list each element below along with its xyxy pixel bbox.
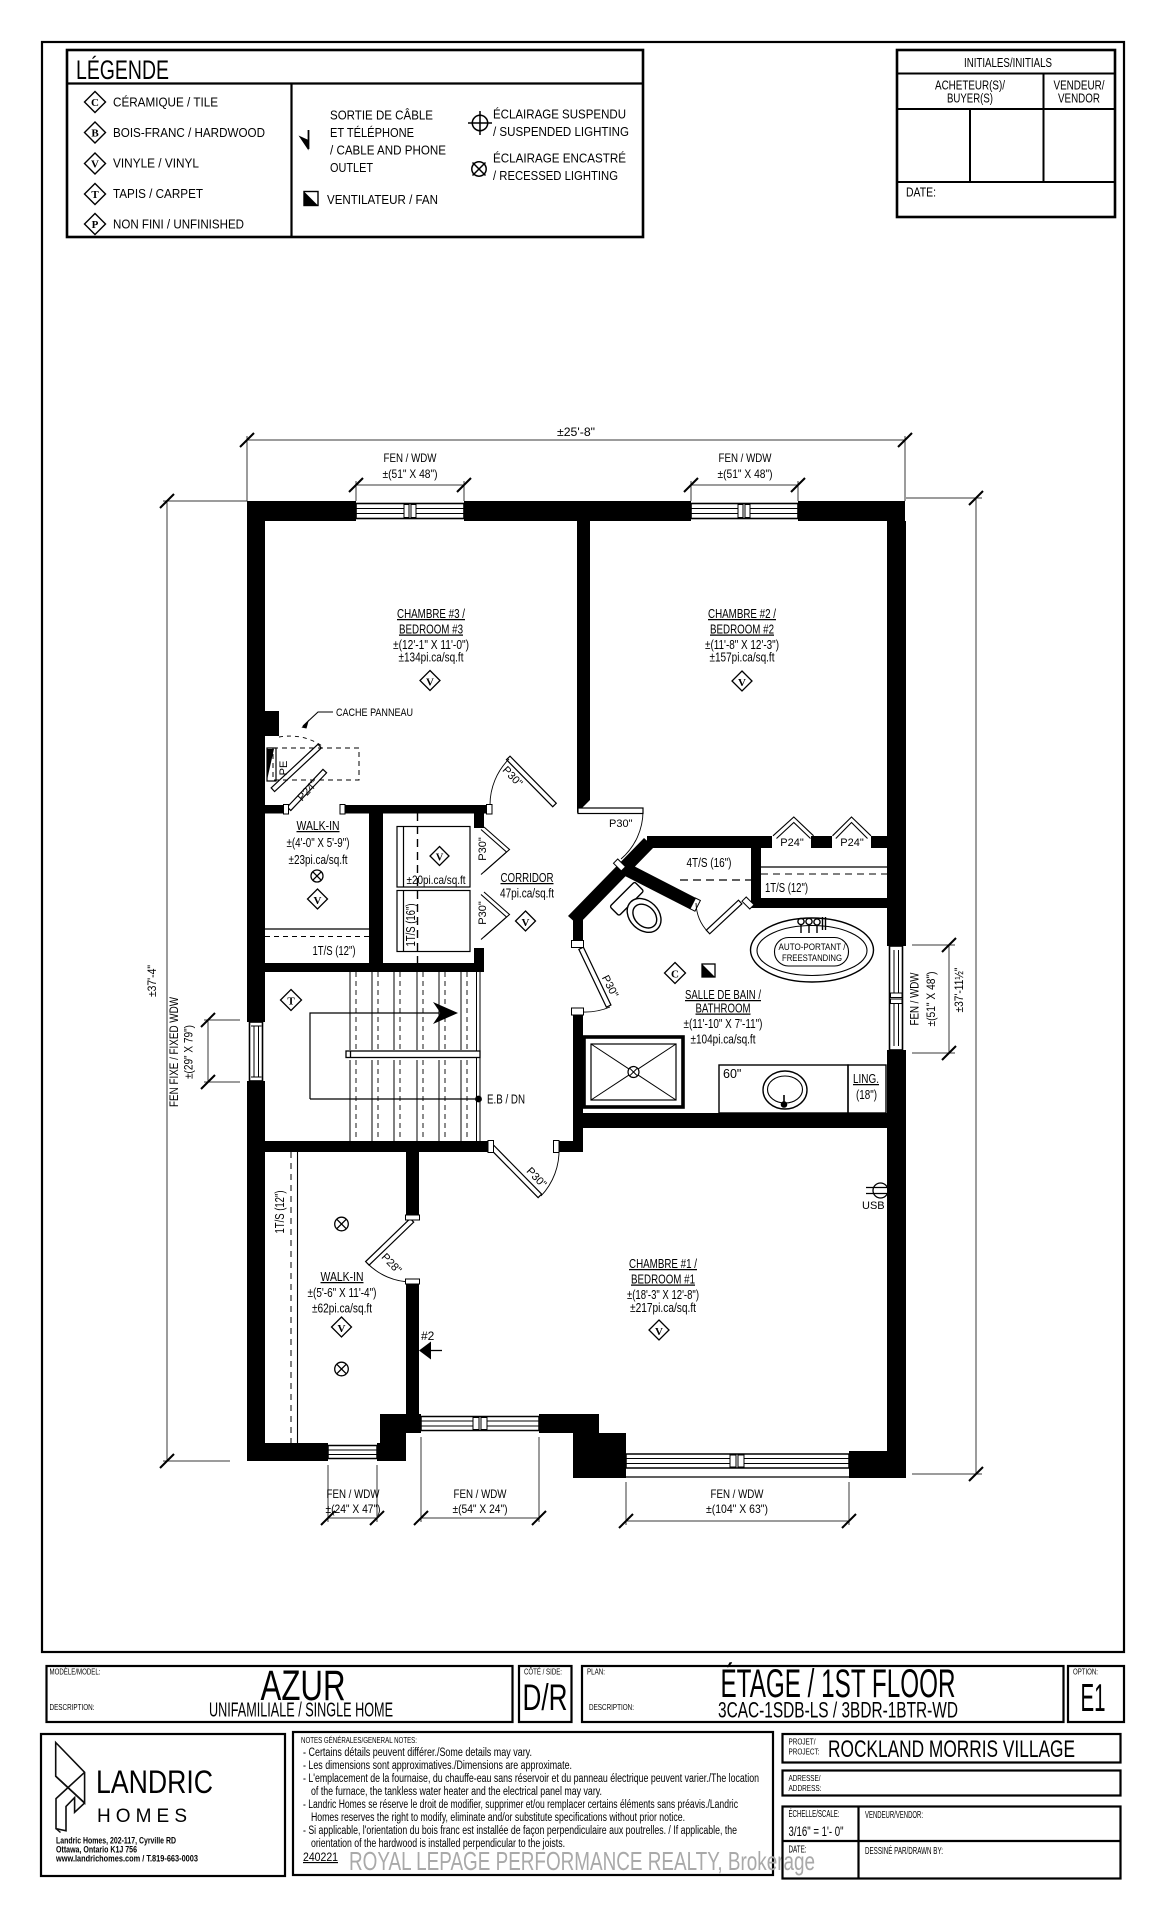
svg-text:V: V xyxy=(655,1326,663,1338)
svg-text:±62pi.ca/sq.ft: ±62pi.ca/sq.ft xyxy=(312,1302,372,1316)
svg-text:/ RECESSED LIGHTING: / RECESSED LIGHTING xyxy=(493,169,618,183)
svg-text:C: C xyxy=(671,969,679,981)
svg-text:±20pi.ca/sq.ft: ±20pi.ca/sq.ft xyxy=(407,873,467,887)
svg-text:CACHE PANNEAU: CACHE PANNEAU xyxy=(336,707,413,719)
svg-text:WALK-IN: WALK-IN xyxy=(297,819,340,833)
svg-text:±(11'-10" X 7'-11"): ±(11'-10" X 7'-11") xyxy=(684,1017,763,1031)
svg-text:VENDEUR/VENDOR:: VENDEUR/VENDOR: xyxy=(865,1810,923,1821)
svg-text:CHAMBRE #3 /: CHAMBRE #3 / xyxy=(397,607,465,621)
svg-text:±(24" X 47"): ±(24" X 47") xyxy=(326,1502,381,1516)
svg-text:±(51" X 48"): ±(51" X 48") xyxy=(924,972,938,1027)
svg-text:±23pi.ca/sq.ft: ±23pi.ca/sq.ft xyxy=(289,853,348,867)
svg-text:INITIALES/INITIALS: INITIALES/INITIALS xyxy=(964,56,1052,70)
svg-text:BEDROOM #3: BEDROOM #3 xyxy=(399,623,463,637)
svg-text:BOIS-FRANC / HARDWOOD: BOIS-FRANC / HARDWOOD xyxy=(113,126,265,140)
svg-text:- L'emplacement de la fournai: - L'emplacement de la fournaise, du chau… xyxy=(303,1773,759,1785)
svg-text:SALLE DE BAIN /: SALLE DE BAIN / xyxy=(685,988,761,1002)
svg-text:±(5'-6" X 11'-4"): ±(5'-6" X 11'-4") xyxy=(308,1286,377,1300)
svg-text:BEDROOM #2: BEDROOM #2 xyxy=(710,623,774,637)
svg-text:TAPIS / CARPET: TAPIS / CARPET xyxy=(113,187,203,201)
svg-text:FEN / WDW: FEN / WDW xyxy=(384,451,438,465)
svg-text:FEN / WDW: FEN / WDW xyxy=(908,972,922,1026)
svg-text:(18"): (18") xyxy=(856,1088,877,1102)
svg-text:VINYLE / VINYL: VINYLE / VINYL xyxy=(113,157,199,171)
svg-text:V: V xyxy=(426,677,434,689)
svg-text:1T/S (12"): 1T/S (12") xyxy=(273,1191,287,1234)
svg-text:AUTO-PORTANT /: AUTO-PORTANT / xyxy=(779,942,846,953)
svg-text:LING.: LING. xyxy=(853,1072,879,1086)
svg-text:of the furnace, the tankless w: of the furnace, the tankless water heate… xyxy=(311,1786,602,1798)
svg-text:FEN / WDW: FEN / WDW xyxy=(327,1487,381,1501)
svg-text:±134pi.ca/sq.ft: ±134pi.ca/sq.ft xyxy=(399,651,464,665)
svg-text:V: V xyxy=(338,1323,346,1335)
svg-text:P: P xyxy=(92,219,99,231)
svg-text:Homes reserves the right to mo: Homes reserves the right to modify, elim… xyxy=(311,1812,685,1824)
svg-text:B: B xyxy=(91,128,99,140)
svg-text:DATE:: DATE: xyxy=(789,1845,807,1856)
svg-text:www.landrichomes.com / T.819-6: www.landrichomes.com / T.819-663-0003 xyxy=(55,1854,198,1865)
svg-text:BUYER(S): BUYER(S) xyxy=(947,92,993,106)
svg-text:E1: E1 xyxy=(1081,1677,1106,1720)
svg-text:ADDRESS:: ADDRESS: xyxy=(789,1783,822,1793)
svg-text:LÉGENDE: LÉGENDE xyxy=(76,55,169,85)
svg-text:- Landric Homes se réserve le: - Landric Homes se réserve le droit de m… xyxy=(303,1799,738,1811)
svg-text:FEN / WDW: FEN / WDW xyxy=(711,1487,765,1501)
svg-text:V: V xyxy=(91,159,99,171)
svg-text:ÉCLAIRAGE ENCASTRÉ: ÉCLAIRAGE ENCASTRÉ xyxy=(493,151,626,166)
svg-text:UNIFAMILIALE / SINGLE HOME: UNIFAMILIALE / SINGLE HOME xyxy=(209,1700,393,1722)
svg-text:MODÈLE/MODEL:: MODÈLE/MODEL: xyxy=(50,1667,101,1677)
svg-text:±(51" X 48"): ±(51" X 48") xyxy=(383,467,438,481)
svg-text:VENDEUR/: VENDEUR/ xyxy=(1054,79,1105,93)
svg-text:LANDRIC: LANDRIC xyxy=(96,1764,213,1800)
svg-text:3CAC-1SDB-LS / 3BDR-1BTR-WD: 3CAC-1SDB-LS / 3BDR-1BTR-WD xyxy=(718,1698,958,1723)
svg-text:E.B / DN: E.B / DN xyxy=(487,1093,525,1107)
svg-text:±(104" X 63"): ±(104" X 63") xyxy=(706,1502,768,1516)
svg-text:CHAMBRE #2 /: CHAMBRE #2 / xyxy=(708,607,776,621)
svg-text:/ SUSPENDED LIGHTING: / SUSPENDED LIGHTING xyxy=(493,125,629,139)
svg-text:SORTIE DE CÂBLE: SORTIE DE CÂBLE xyxy=(330,108,433,123)
svg-text:CORRIDOR: CORRIDOR xyxy=(501,871,554,885)
svg-text:DESCRIPTION:: DESCRIPTION: xyxy=(589,1702,634,1712)
svg-text:P24": P24" xyxy=(780,837,804,849)
svg-text:BATHROOM: BATHROOM xyxy=(696,1002,751,1016)
svg-text:T: T xyxy=(287,996,295,1008)
svg-text:FREESTANDING: FREESTANDING xyxy=(782,953,842,964)
svg-text:ÉCLAIRAGE SUSPENDU: ÉCLAIRAGE SUSPENDU xyxy=(493,107,626,122)
svg-text:±(18'-3" X 12'-8"): ±(18'-3" X 12'-8") xyxy=(627,1288,699,1302)
svg-text:1T/S (12"): 1T/S (12") xyxy=(765,881,808,895)
svg-text:OUTLET: OUTLET xyxy=(330,161,373,175)
svg-text:T: T xyxy=(91,189,99,201)
svg-text:D/R: D/R xyxy=(523,1677,568,1718)
svg-text:V: V xyxy=(436,853,444,864)
svg-text:240221: 240221 xyxy=(303,1852,338,1864)
svg-text:±(51" X 48"): ±(51" X 48") xyxy=(718,467,773,481)
svg-text:- Certains détails peuvent di: - Certains détails peuvent différer./Som… xyxy=(303,1747,532,1759)
svg-text:#2: #2 xyxy=(421,1329,435,1343)
svg-text:60": 60" xyxy=(723,1067,741,1081)
svg-text:WALK-IN: WALK-IN xyxy=(321,1270,364,1284)
svg-text:C: C xyxy=(91,97,99,109)
svg-text:CHAMBRE #1 /: CHAMBRE #1 / xyxy=(629,1257,697,1271)
svg-text:P30": P30" xyxy=(609,818,633,830)
svg-text:±(29" X 79"): ±(29" X 79") xyxy=(182,1025,196,1079)
svg-text:47pi.ca/sq.ft: 47pi.ca/sq.ft xyxy=(500,887,554,901)
svg-text:FEN / WDW: FEN / WDW xyxy=(719,451,773,465)
svg-text:±37'-11½": ±37'-11½" xyxy=(952,968,966,1013)
svg-text:- Les dimensions sont approxi: - Les dimensions sont approximatives./Di… xyxy=(303,1760,572,1772)
svg-text:ACHETEUR(S)/: ACHETEUR(S)/ xyxy=(935,79,1005,93)
svg-text:DESCRIPTION:: DESCRIPTION: xyxy=(50,1702,95,1712)
svg-text:PROJECT:: PROJECT: xyxy=(789,1747,820,1757)
svg-text:±157pi.ca/sq.ft: ±157pi.ca/sq.ft xyxy=(710,651,775,665)
svg-text:4T/S (16"): 4T/S (16") xyxy=(687,856,732,870)
svg-text:FEN / WDW: FEN / WDW xyxy=(454,1487,508,1501)
svg-text:ET TÉLÉPHONE: ET TÉLÉPHONE xyxy=(330,125,414,140)
svg-text:V: V xyxy=(522,917,530,929)
svg-text:±217pi.ca/sq.ft: ±217pi.ca/sq.ft xyxy=(630,1301,696,1315)
svg-text:BEDROOM #1: BEDROOM #1 xyxy=(631,1273,695,1287)
svg-text:NON FINI / UNFINISHED: NON FINI / UNFINISHED xyxy=(113,218,244,232)
svg-text:VENTILATEUR / FAN: VENTILATEUR / FAN xyxy=(327,193,438,207)
svg-text:±(54" X 24"): ±(54" X 24") xyxy=(453,1502,508,1516)
svg-text:NOTES GÉNÉRALES/GENERAL NOTES:: NOTES GÉNÉRALES/GENERAL NOTES: xyxy=(301,1735,417,1745)
svg-text:/ CABLE AND PHONE: / CABLE AND PHONE xyxy=(330,144,446,158)
svg-text:CÉRAMIQUE / TILE: CÉRAMIQUE / TILE xyxy=(113,95,218,110)
svg-text:USB: USB xyxy=(862,1200,885,1212)
svg-text:P24": P24" xyxy=(840,837,864,849)
svg-text:CÔTÉ / SIDE:: CÔTÉ / SIDE: xyxy=(524,1667,562,1677)
svg-text:PROJET/: PROJET/ xyxy=(789,1737,816,1747)
svg-text:1T/S (16"): 1T/S (16") xyxy=(404,904,418,947)
svg-text:±37'-4": ±37'-4" xyxy=(145,965,159,997)
svg-text:P30": P30" xyxy=(477,837,489,861)
svg-text:- Si applicable, l'orientatio: - Si applicable, l'orientation du bois f… xyxy=(303,1825,737,1837)
svg-text:ROCKLAND MORRIS VILLAGE: ROCKLAND MORRIS VILLAGE xyxy=(828,1736,1075,1763)
svg-text:FEN FIXE / FIXED WDW: FEN FIXE / FIXED WDW xyxy=(167,996,181,1107)
svg-text:ADRESSE/: ADRESSE/ xyxy=(789,1773,821,1783)
svg-text:±104pi.ca/sq.ft: ±104pi.ca/sq.ft xyxy=(691,1033,756,1047)
svg-text:V: V xyxy=(738,677,746,689)
svg-text:V: V xyxy=(314,895,322,907)
svg-text:DATE:: DATE: xyxy=(906,186,936,200)
svg-text:1T/S (12"): 1T/S (12") xyxy=(313,944,356,958)
svg-text:ÉCHELLE/SCALE:: ÉCHELLE/SCALE: xyxy=(789,1807,840,1820)
svg-text:P30": P30" xyxy=(477,901,489,925)
svg-text:3/16" = 1'- 0": 3/16" = 1'- 0" xyxy=(789,1824,844,1839)
svg-text:PE: PE xyxy=(278,761,290,776)
svg-text:DESSINÉ PAR/DRAWN BY:: DESSINÉ PAR/DRAWN BY: xyxy=(865,1844,943,1857)
svg-text:ROYAL LEPAGE PERFORMANCE REALT: ROYAL LEPAGE PERFORMANCE REALTY, Brokera… xyxy=(349,1846,815,1876)
svg-text:HOMES: HOMES xyxy=(97,1806,187,1827)
svg-text:PLAN:: PLAN: xyxy=(587,1667,605,1677)
svg-text:±25'-8": ±25'-8" xyxy=(557,425,595,439)
svg-text:±(4'-0" X 5'-9"): ±(4'-0" X 5'-9") xyxy=(287,836,350,850)
svg-text:VENDOR: VENDOR xyxy=(1058,92,1100,106)
svg-text:OPTION:: OPTION: xyxy=(1073,1667,1098,1677)
